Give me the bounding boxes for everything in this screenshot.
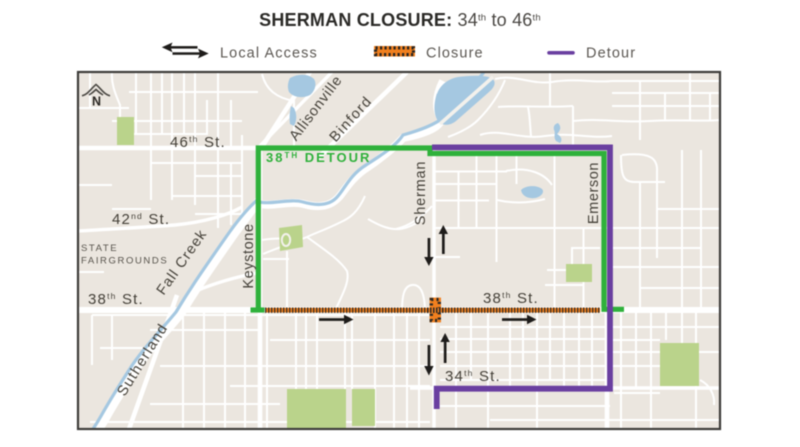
svg-text:SHERMAN CLOSURE: 34th to 46th: SHERMAN CLOSURE: 34th to 46th xyxy=(259,10,541,30)
svg-text:Emerson: Emerson xyxy=(586,162,602,224)
svg-text:Local Access: Local Access xyxy=(220,45,318,61)
svg-text:STATE: STATE xyxy=(81,243,118,254)
svg-text:Keystone: Keystone xyxy=(241,223,257,288)
svg-text:46th St.: 46th St. xyxy=(170,134,226,151)
svg-text:38TH DETOUR: 38TH DETOUR xyxy=(266,150,371,165)
svg-text:38th St.: 38th St. xyxy=(88,291,144,308)
svg-text:Detour: Detour xyxy=(586,45,636,61)
svg-text:FAIRGROUNDS: FAIRGROUNDS xyxy=(81,256,168,267)
svg-text:Closure: Closure xyxy=(426,45,484,61)
svg-text:Sherman: Sherman xyxy=(413,161,429,225)
svg-text:N: N xyxy=(92,95,101,109)
svg-text:34th St.: 34th St. xyxy=(445,368,501,385)
svg-text:38th St.: 38th St. xyxy=(483,290,539,307)
